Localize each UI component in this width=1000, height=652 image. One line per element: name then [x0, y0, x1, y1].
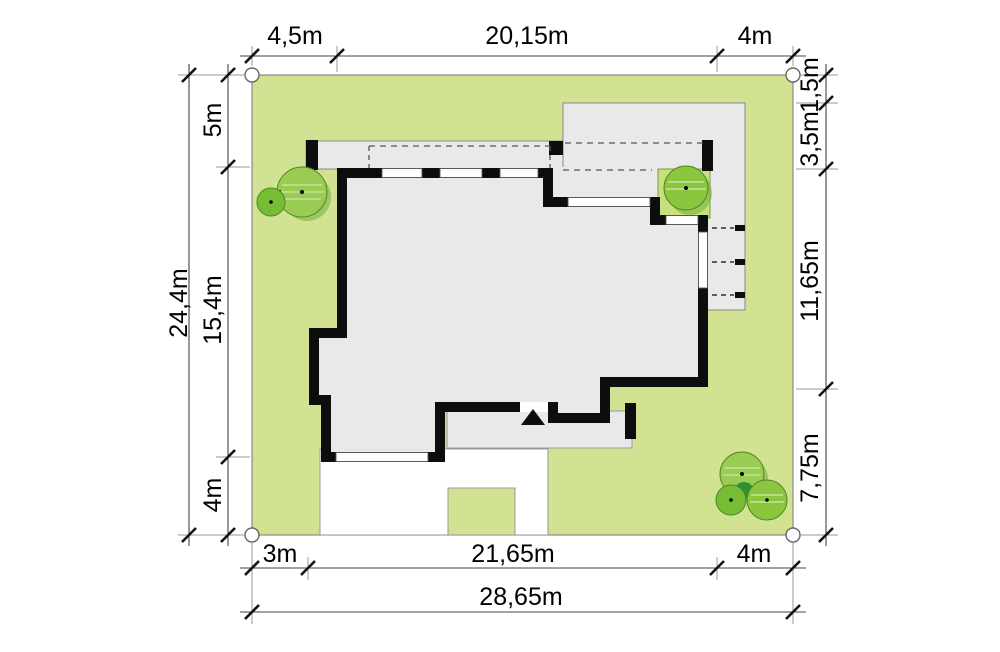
window-terrace — [568, 198, 650, 207]
dim-label-right-3: 11,65m — [796, 240, 824, 322]
dim-label-bottom-1: 3m — [263, 540, 298, 568]
walkway-end-wall — [625, 403, 636, 439]
patio-side-wall — [702, 140, 713, 171]
dim-label-bottom-2: 21,65m — [471, 540, 554, 568]
dim-label-bottom-total: 28,65m — [479, 583, 562, 611]
dim-label-top-2: 20,15m — [485, 22, 568, 50]
corner-marker-bottom-left — [245, 528, 259, 542]
dim-label-left-2: 15,4m — [199, 275, 227, 344]
site-plan-page: 4,5m 20,15m 4m 24,4m 5m 15,4m 4m 1,5m 3,… — [0, 0, 1000, 652]
dim-label-right-1: 1,5m — [796, 57, 824, 113]
dim-label-left-1: 5m — [199, 103, 227, 138]
site-plan-drawing: 4,5m 20,15m 4m 24,4m 5m 15,4m 4m 1,5m 3,… — [0, 0, 1000, 652]
dim-label-right-4: 7,75m — [796, 433, 824, 502]
dim-label-right-2: 3,5m — [796, 111, 824, 167]
band-wall-block — [306, 140, 318, 170]
dim-label-top-3: 4m — [738, 22, 773, 50]
window-top-2 — [440, 169, 482, 178]
window-top-1 — [382, 169, 422, 178]
window-bottom — [336, 453, 428, 462]
dim-label-left-3: 4m — [199, 478, 227, 513]
driveway-green-square — [448, 488, 515, 535]
band-wall-corner — [549, 141, 563, 155]
dim-label-top-1: 4,5m — [267, 22, 323, 50]
corner-marker-bottom-right — [786, 528, 800, 542]
corner-marker-top-left — [245, 68, 259, 82]
window-right — [699, 232, 708, 288]
garage-band — [306, 140, 563, 170]
dim-label-bottom-3: 4m — [737, 540, 772, 568]
window-top-3 — [500, 169, 538, 178]
dim-label-left-total: 24,4m — [165, 268, 193, 337]
window-patio — [666, 216, 698, 225]
